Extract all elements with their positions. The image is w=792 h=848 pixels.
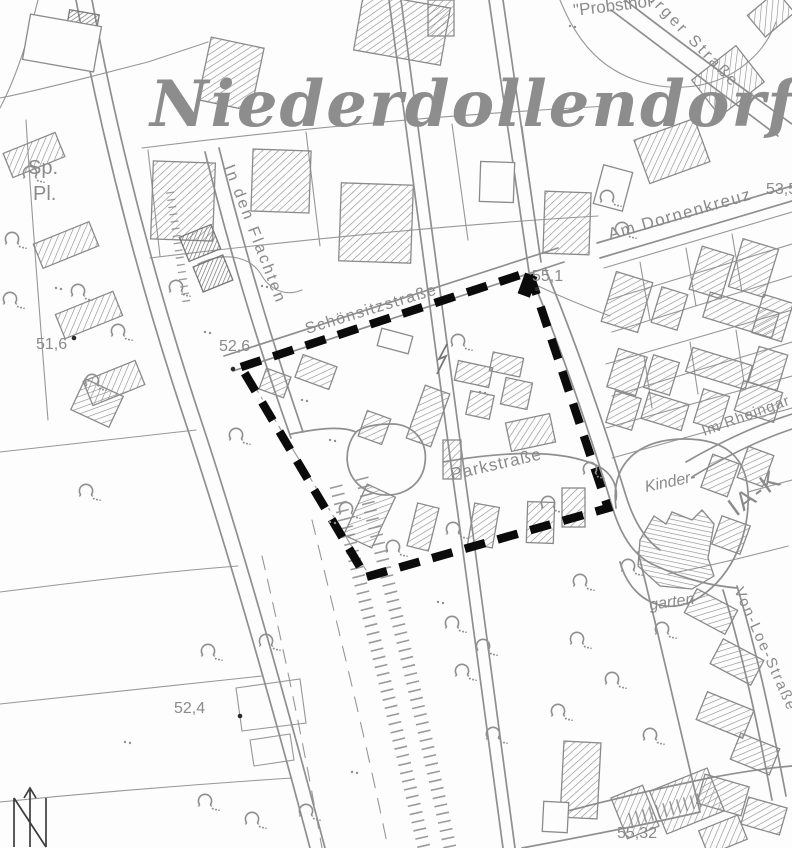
ground-dot: [329, 521, 331, 523]
building: [601, 272, 653, 333]
elevation-label-52-6: 52,6: [219, 338, 250, 355]
building: [55, 291, 122, 338]
elevation-label-55-32: 55,32: [617, 825, 657, 842]
building: [251, 149, 311, 213]
building: [542, 801, 569, 832]
building: [377, 328, 413, 354]
dashed-path: [312, 520, 388, 848]
ground-dot: [442, 602, 444, 604]
parcel-line: [148, 42, 208, 62]
kindergarten-building: [638, 510, 714, 589]
tree-symbol: [169, 280, 191, 297]
building: [33, 222, 98, 269]
elevation-label-52-4: 52,4: [174, 700, 205, 717]
ground-dot: [129, 742, 131, 744]
ground-dot: [261, 285, 263, 287]
transformer-symbol: [437, 344, 447, 374]
ground-dot: [356, 772, 358, 774]
building: [730, 733, 779, 775]
building: [607, 348, 647, 395]
building: [454, 361, 492, 388]
building: [689, 246, 734, 299]
tree-symbol: [573, 574, 595, 591]
tree-symbol: [71, 284, 93, 301]
tree-symbol: [245, 812, 267, 829]
building: [641, 392, 689, 430]
parcel-line: [0, 566, 238, 592]
ground-dot: [334, 522, 336, 524]
ground-dot: [124, 741, 126, 743]
building: [466, 391, 494, 419]
building: [428, 0, 454, 36]
building: [644, 355, 680, 395]
tree-symbol: [605, 672, 627, 689]
building: [752, 294, 792, 341]
building: [339, 183, 414, 263]
benchmark-dot: [535, 287, 540, 292]
building: [696, 692, 754, 739]
ground-dot: [437, 601, 439, 603]
tree-symbol: [455, 664, 477, 681]
tree-symbol: [79, 484, 101, 501]
building: [741, 797, 787, 835]
building: [747, 0, 792, 37]
place-label-sportplatz-2: Pl.: [33, 183, 56, 205]
ground-dot: [60, 288, 62, 290]
parcel-line: [0, 778, 292, 802]
tree-symbol: [570, 632, 592, 649]
tree-symbol: [551, 704, 573, 721]
building: [526, 502, 554, 544]
parcel-line: [0, 430, 196, 452]
building: [407, 503, 439, 551]
building: [489, 352, 523, 377]
building: [406, 385, 450, 447]
map-title: Niederdollendorf: [148, 67, 792, 142]
building: [344, 484, 396, 548]
building: [358, 411, 391, 445]
ground-dot: [484, 392, 486, 394]
ground-dot: [334, 440, 336, 442]
ground-dot: [569, 25, 571, 27]
parcel-line: [0, 676, 262, 704]
benchmark-dot: [72, 336, 77, 341]
ground-dot: [209, 332, 211, 334]
building: [651, 287, 688, 330]
tree-symbol: [5, 232, 27, 249]
building: [699, 815, 748, 848]
tree-symbol: [229, 428, 251, 445]
ground-dot: [301, 399, 303, 401]
road-line: [704, 766, 792, 779]
building: [593, 165, 632, 211]
ground-dot: [55, 287, 57, 289]
place-label-kindergarten-1: Kinder-: [643, 469, 697, 496]
tree-symbol: [445, 616, 467, 633]
tree-symbol: [198, 794, 220, 811]
ground-dot: [204, 331, 206, 333]
ground-dot: [479, 391, 481, 393]
ground-dot: [574, 26, 576, 28]
building: [543, 191, 591, 255]
tree-symbol: [446, 522, 468, 539]
street-label-parkstrasse: Parkstraße: [449, 444, 544, 483]
building: [500, 377, 532, 409]
elevation-label-55-1: 55,1: [532, 268, 563, 285]
tree-symbol: [386, 540, 408, 557]
building: [295, 355, 337, 390]
building: [728, 239, 778, 298]
ground-dot: [351, 771, 353, 773]
elevation-label-51-6: 51,6: [36, 336, 67, 353]
tree-symbol: [111, 324, 133, 341]
ground-dot: [329, 439, 331, 441]
tree-symbol: [3, 292, 25, 309]
north-arrow-icon: [14, 788, 46, 847]
building: [193, 255, 233, 292]
tree-symbol: [201, 644, 223, 661]
parcel-line: [538, 286, 610, 316]
building: [606, 391, 641, 430]
benchmark-dot: [231, 367, 236, 372]
benchmark-dot: [238, 714, 243, 719]
building: [259, 368, 291, 398]
building: [479, 161, 514, 202]
map: Niederdollendorf "Probsthof " Sp. Pl. In…: [0, 0, 792, 848]
elevation-label-53-5: 53,5: [766, 181, 792, 198]
building: [712, 516, 750, 554]
place-label-sportplatz-1: Sp.: [28, 157, 58, 179]
map-canvas: Niederdollendorf "Probsthof " Sp. Pl. In…: [0, 0, 792, 848]
road-line: [291, 428, 356, 434]
ground-dot: [306, 400, 308, 402]
tree-symbol: [451, 334, 473, 351]
tree-symbol: [643, 728, 665, 745]
paths-dashed-layer: [252, 382, 388, 848]
